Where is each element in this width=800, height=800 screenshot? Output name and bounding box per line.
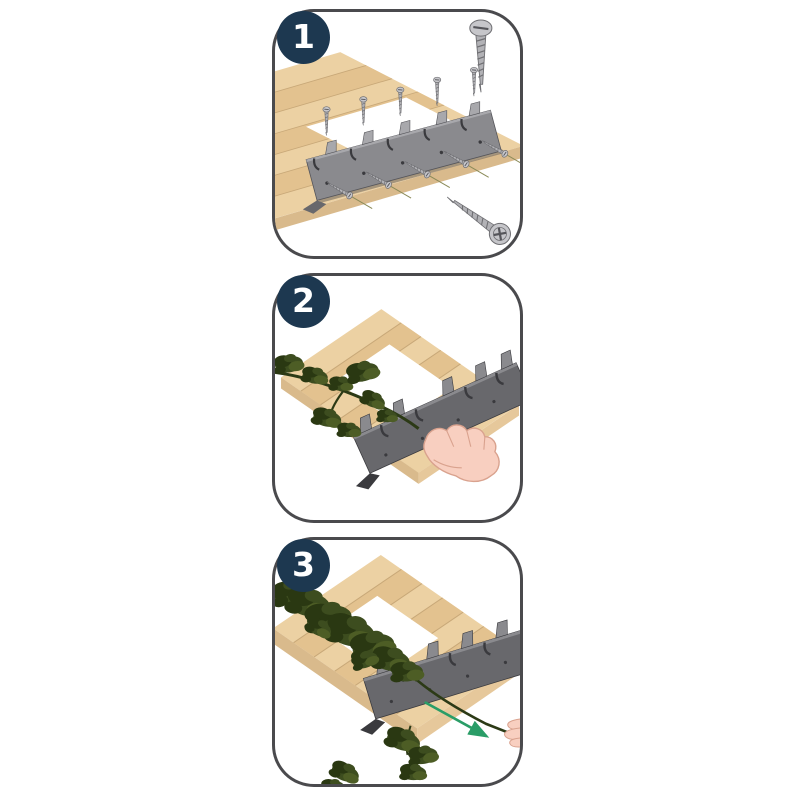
step-2-panel: 2 xyxy=(272,273,523,523)
instruction-steps: 1 xyxy=(272,9,523,787)
phillips-screw-icon xyxy=(441,188,514,248)
pulling-fingers-icon xyxy=(505,719,520,747)
step-number-badge: 2 xyxy=(277,275,330,328)
step-number: 3 xyxy=(292,548,315,581)
step-number: 2 xyxy=(292,284,315,317)
step-3-panel: 3 xyxy=(272,537,523,787)
step-number-badge: 1 xyxy=(277,11,330,64)
step-number: 1 xyxy=(292,20,315,53)
step-number-badge: 3 xyxy=(277,539,330,592)
step-1-panel: 1 xyxy=(272,9,523,259)
